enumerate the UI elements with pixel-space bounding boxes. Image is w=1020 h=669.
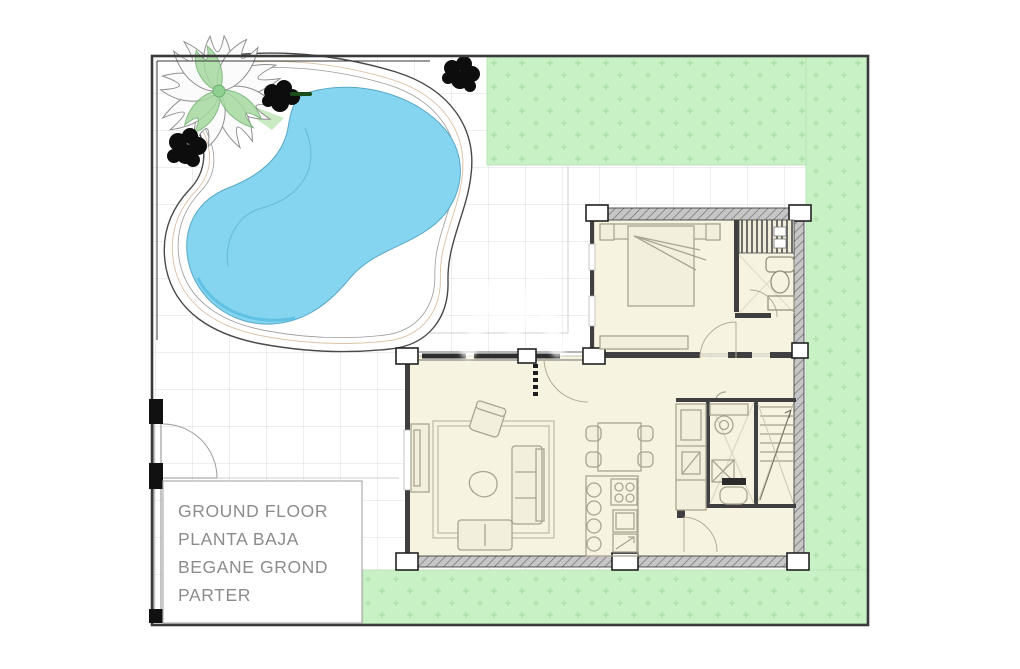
dining-chair [586, 452, 601, 467]
basin [774, 239, 786, 248]
column [586, 205, 608, 221]
vanity [710, 404, 748, 415]
floor-plan-svg: GROUND FLOOR PLANTA BAJA BEGANE GROND PA… [0, 0, 1020, 669]
floor-label-es: PLANTA BAJA [178, 529, 299, 549]
dining-chair [586, 426, 601, 441]
wall-service-bottom [706, 504, 796, 508]
column [789, 205, 811, 221]
sofa-long [512, 446, 542, 524]
wall-right [794, 214, 804, 560]
wall-bedroom-bath [734, 220, 739, 312]
palm-trunk [213, 85, 225, 97]
nightstand [600, 224, 614, 240]
lawn-right-strip [806, 57, 867, 624]
wall-hall-mid [728, 352, 752, 358]
floor-label-en: GROUND FLOOR [178, 501, 328, 521]
column [396, 348, 418, 364]
column [792, 343, 808, 358]
lawn-bottom-strip [363, 570, 867, 624]
bedroom-window [589, 296, 595, 326]
wall-hall-right [770, 352, 794, 358]
column [396, 553, 418, 570]
floor-label-nl: BEGANE GROND [178, 557, 328, 577]
nightstand [706, 224, 720, 240]
gate-pier [149, 609, 163, 623]
column [787, 553, 809, 570]
living-window [404, 430, 411, 490]
bedroom-window [589, 244, 595, 270]
floor-label-ro: PARTER [178, 585, 251, 605]
title-block: GROUND FLOOR PLANTA BAJA BEGANE GROND PA… [163, 481, 362, 623]
wall-bottom [406, 556, 798, 567]
door-jamb [677, 510, 685, 518]
floor-plan-page: GROUND FLOOR PLANTA BAJA BEGANE GROND PA… [0, 0, 1020, 669]
gate-pier [149, 399, 163, 424]
toilet-bowl [771, 271, 789, 293]
toilet-cistern [766, 257, 794, 272]
wall-bath2-stairs [754, 402, 758, 508]
column [518, 349, 536, 363]
wall-bedroom-top [596, 208, 793, 220]
wall-bedroom-left [590, 220, 594, 354]
wall-hall-bedroom [590, 352, 700, 358]
dining-chair [638, 452, 653, 467]
wall-service-top [676, 398, 796, 402]
wall-bath-antechamber [735, 313, 771, 318]
basin [774, 227, 786, 236]
dining-chair [638, 426, 653, 441]
gate-pier [149, 463, 163, 489]
bedroom-dresser [600, 336, 688, 349]
toilet-seat [722, 478, 746, 485]
column [583, 348, 605, 364]
